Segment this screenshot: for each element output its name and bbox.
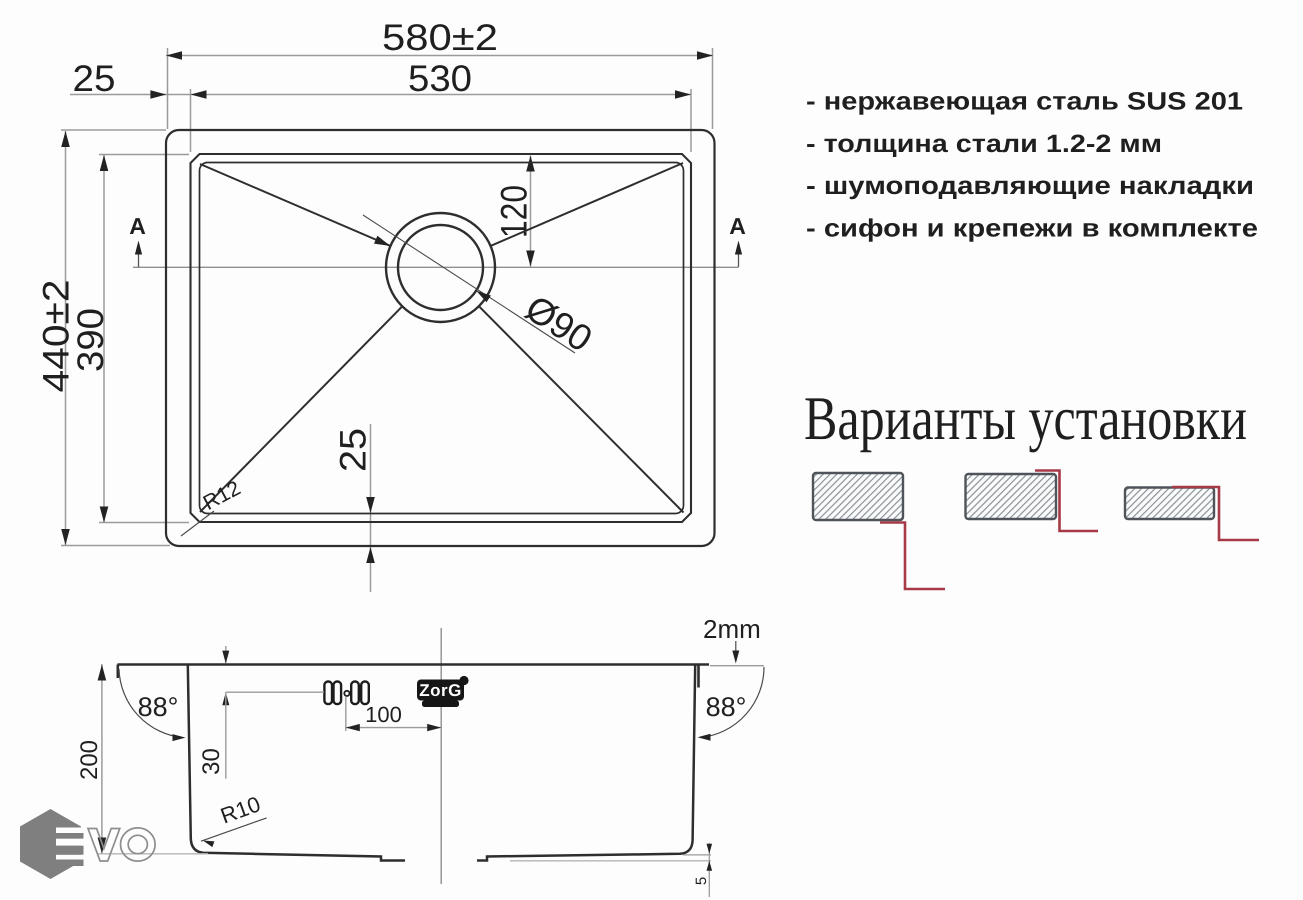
svg-text:25: 25 xyxy=(333,428,374,472)
svg-text:5: 5 xyxy=(693,877,710,885)
svg-text:ZorG: ZorG xyxy=(419,681,462,700)
svg-text:390: 390 xyxy=(70,308,111,372)
svg-text:- толщина стали 1.2-2 мм: - толщина стали 1.2-2 мм xyxy=(806,130,1162,158)
svg-text:30: 30 xyxy=(198,748,225,775)
svg-text:580±2: 580±2 xyxy=(382,17,498,58)
svg-text:- сифон и крепежи в комплекте: - сифон и крепежи в комплекте xyxy=(806,215,1258,243)
svg-text:A: A xyxy=(129,213,146,239)
svg-text:88°: 88° xyxy=(706,692,747,722)
svg-text:2mm: 2mm xyxy=(703,614,761,644)
svg-text:530: 530 xyxy=(408,58,472,99)
svg-text:100: 100 xyxy=(365,702,402,727)
svg-text:- шумоподавляющие накладки: - шумоподавляющие накладки xyxy=(806,172,1254,200)
svg-text:88°: 88° xyxy=(138,692,179,722)
svg-text:Варианты установки: Варианты установки xyxy=(804,385,1247,453)
svg-text:200: 200 xyxy=(76,740,103,780)
svg-text:A: A xyxy=(729,213,746,239)
svg-text:- нержавеющая сталь SUS 201: - нержавеющая сталь SUS 201 xyxy=(806,88,1243,116)
svg-text:25: 25 xyxy=(73,58,116,99)
